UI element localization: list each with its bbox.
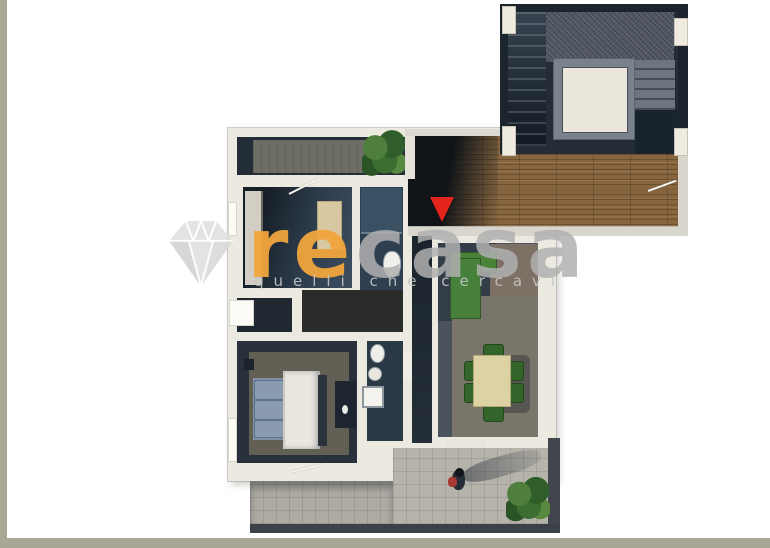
corridor-right-wall bbox=[678, 154, 688, 235]
shower-tray bbox=[362, 386, 384, 408]
terrace-door-threshold bbox=[447, 439, 487, 448]
tv-screen bbox=[342, 405, 348, 414]
frame-left-edge bbox=[0, 0, 7, 548]
frame-bottom-edge bbox=[0, 538, 770, 548]
bed-footboard bbox=[318, 375, 327, 446]
window bbox=[229, 300, 254, 326]
elevator-cab bbox=[562, 67, 628, 133]
bathroom2-door bbox=[403, 352, 412, 378]
toilet bbox=[370, 344, 385, 363]
brand-tagline: quelli che cercavi bbox=[254, 272, 565, 290]
potted-palm-icon bbox=[362, 130, 406, 180]
dining-table bbox=[473, 355, 511, 407]
dining-chair bbox=[510, 361, 524, 381]
wall-pillar bbox=[674, 18, 688, 46]
wall-pillar bbox=[674, 128, 688, 156]
person-head bbox=[455, 468, 464, 477]
terrace-left bbox=[250, 481, 393, 524]
stair-landing bbox=[546, 12, 674, 62]
loggia-mat bbox=[253, 140, 373, 173]
pillow bbox=[254, 400, 284, 420]
nightstand bbox=[244, 359, 254, 370]
corridor-left-wall bbox=[405, 136, 415, 179]
stairwell bbox=[500, 4, 688, 154]
person-bag bbox=[448, 477, 457, 487]
corridor-top-wall bbox=[405, 129, 505, 136]
terrace-parapet-bottom bbox=[250, 524, 560, 533]
wall-pillar bbox=[502, 6, 516, 34]
potted-palm-icon bbox=[506, 477, 550, 525]
dining-chair bbox=[483, 406, 504, 422]
bed-mattress bbox=[283, 371, 320, 449]
dining-chair bbox=[510, 383, 524, 403]
stairwell-void bbox=[635, 110, 678, 154]
stairwell-wall-top bbox=[500, 4, 688, 12]
wall-pillar bbox=[502, 126, 516, 156]
diamond-icon bbox=[163, 214, 239, 292]
window bbox=[228, 418, 237, 462]
pillow bbox=[254, 420, 284, 438]
pillow bbox=[254, 380, 284, 400]
bidet bbox=[368, 367, 382, 381]
floorplan-render: recasa quelli che cercavi bbox=[0, 0, 770, 548]
stairs-flight-right bbox=[635, 60, 675, 110]
